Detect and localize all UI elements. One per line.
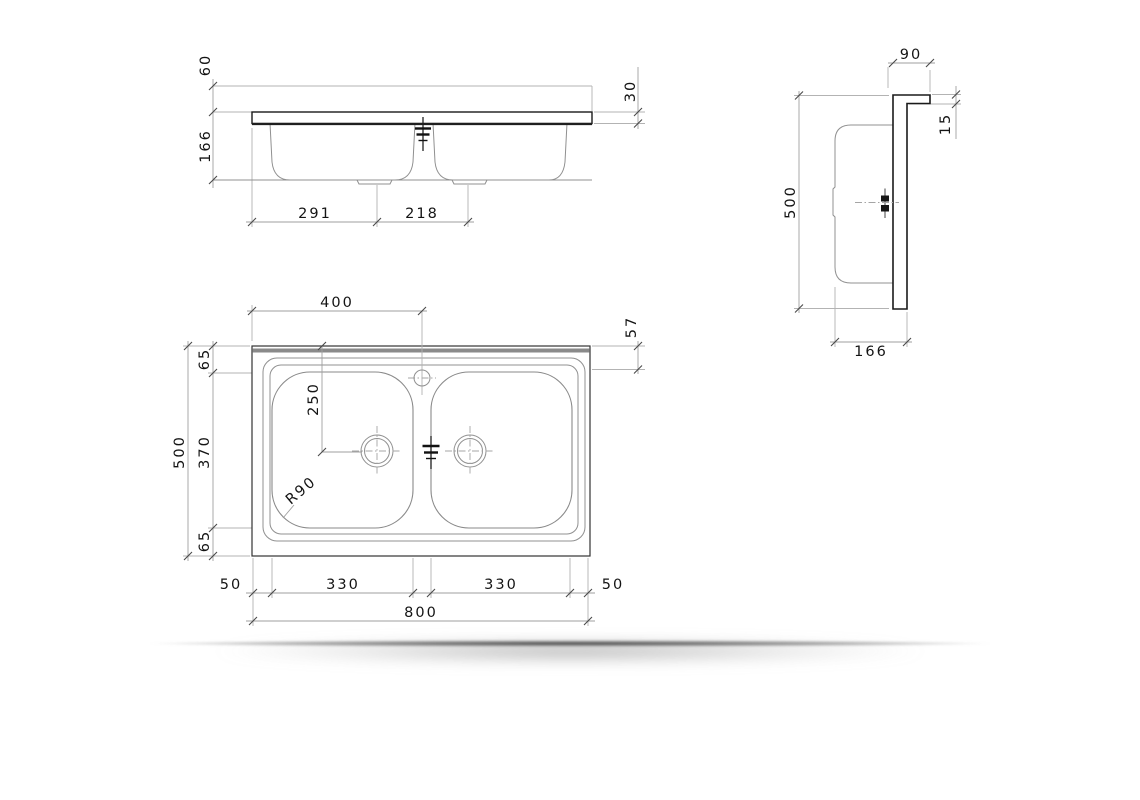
dim-label-backsplash-depth: 90: [900, 47, 922, 63]
dim-plan-overall-length: 800: [246, 605, 595, 625]
dim-label-bowl2-length: 330: [484, 577, 518, 593]
drawing-canvas: 60 166 30 291 218 90: [0, 0, 1140, 800]
floor-shadow-line: [28, 639, 1112, 648]
hole-mark-block2: [881, 205, 889, 212]
dim-label-faucet-from-left: 400: [320, 295, 354, 311]
dim-label-overall-length: 800: [404, 605, 438, 621]
dim-label-backsplash-thickness: 15: [938, 113, 954, 135]
dim-side-backsplash-thickness: 15: [938, 86, 960, 139]
dim-side-bowl-section: 166: [830, 338, 912, 360]
dim-front-worktop-thickness: 30: [623, 67, 642, 129]
dim-front-left: 60 166: [198, 54, 217, 188]
dim-label-overall-depth: 500: [172, 435, 188, 469]
dim-label-right-margin: 50: [602, 577, 624, 593]
dim-label-worktop-thickness: 30: [623, 80, 639, 102]
plan-view: 400 57 500 65 370 65 250 R90: [172, 295, 645, 626]
side-bowl-profile: [833, 125, 893, 283]
plan-worktop-outline: [252, 346, 590, 556]
plan-backsplash-band: [253, 349, 590, 353]
dim-label-backsplash-height: 60: [198, 54, 214, 76]
hole-mark-block1: [881, 196, 889, 202]
front-worktop-bar: [252, 112, 592, 124]
dim-label-left-margin: 50: [220, 577, 242, 593]
dim-front-drains: 291 218: [246, 206, 474, 226]
dim-label-drain1-to-drain2: 218: [405, 206, 439, 222]
dim-plan-faucet-x: 400: [247, 295, 427, 315]
side-extension-lines: [794, 67, 961, 347]
dim-plan-overall-depth: 500: [172, 341, 192, 561]
dim-label-back-margin: 65: [197, 348, 213, 370]
dim-label-bowl1-length: 330: [326, 577, 360, 593]
dim-label-bowl-section-depth: 166: [854, 344, 888, 360]
dim-label-drain-from-back: 250: [306, 382, 322, 416]
side-worktop-profile: [893, 95, 930, 309]
dim-side-overall-depth: 500: [783, 91, 803, 313]
dim-label-faucet-from-back: 57: [624, 316, 640, 338]
dim-label-front-margin: 65: [197, 530, 213, 552]
dim-plan-length-chain: 50 330 330 50: [220, 577, 624, 597]
dim-label-overall-depth: 500: [783, 185, 799, 219]
technical-drawing: 60 166 30 291 218 90: [0, 0, 1140, 800]
dim-side-backsplash-depth: 90: [888, 47, 935, 67]
dim-label-bowl-depth: 166: [198, 129, 214, 163]
dim-label-left-to-drain1: 291: [298, 206, 332, 222]
front-view: 60 166 30 291 218: [198, 54, 645, 227]
side-view: 90 15 500 166: [783, 47, 961, 360]
dim-plan-faucet-y: 57: [624, 316, 642, 374]
front-bowl-outlines: [270, 123, 567, 184]
dim-label-bowl-width: 370: [197, 435, 213, 469]
